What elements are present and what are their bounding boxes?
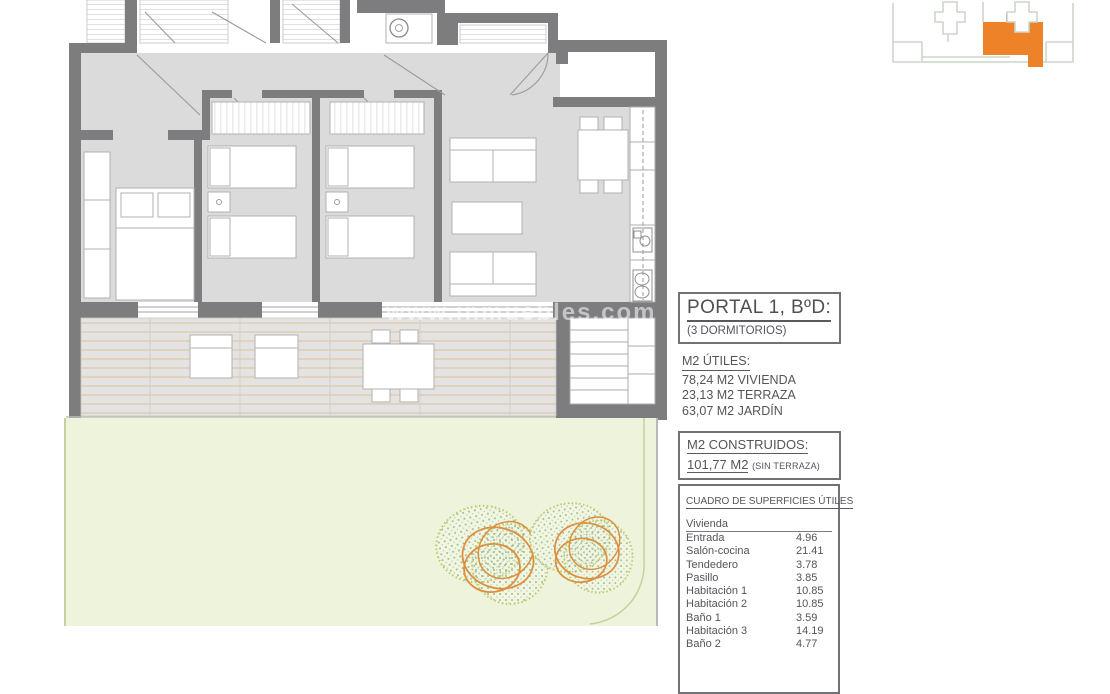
- row-label: Salón-cocina: [686, 545, 750, 558]
- row-label: Entrada: [686, 532, 725, 545]
- chair: [400, 330, 418, 343]
- terrace: [66, 318, 556, 417]
- chair: [580, 117, 598, 130]
- table-row: Habitación 3 14.19: [686, 625, 832, 638]
- m2-utiles-block: M2 ÚTILES: 78,24 M2 VIVIENDA 23,13 M2 TE…: [682, 354, 796, 419]
- portal-title-box: PORTAL 1, BºD: (3 DORMITORIOS): [678, 292, 841, 344]
- bedroom-3: [326, 102, 424, 258]
- dining-table: [578, 130, 628, 180]
- row-value: 4.77: [796, 638, 832, 651]
- m2-construidos-note: (SIN TERRAZA): [752, 461, 820, 471]
- floorplan-page: { "watermark": "www.inmuebles.com", "pan…: [0, 0, 1110, 626]
- portal-title: PORTAL 1, BºD:: [687, 297, 831, 322]
- bedroom-2: [208, 102, 310, 258]
- table-row: Habitación 1 10.85: [686, 585, 832, 598]
- table-row: Entrada 4.96: [686, 532, 832, 545]
- kitchen: [630, 107, 655, 302]
- stairs: [570, 318, 655, 404]
- chair: [400, 389, 418, 402]
- row-value: 10.85: [796, 585, 832, 598]
- sun-lounger: [255, 335, 298, 378]
- surfaces-table-box: CUADRO DE SUPERFICIES ÚTILES Vivienda En…: [678, 484, 840, 694]
- table-row: Baño 2 4.77: [686, 638, 832, 651]
- chair: [604, 117, 622, 130]
- nightstand: [208, 192, 230, 212]
- row-value: 14.19: [796, 625, 832, 638]
- wardrobe: [212, 102, 310, 134]
- m2-construidos-box: M2 CONSTRUIDOS: 101,77 M2 (SIN TERRAZA): [678, 431, 841, 480]
- row-value: 10.85: [796, 598, 832, 611]
- m2-utiles-line: 63,07 M2 JARDÍN: [682, 404, 796, 420]
- surfaces-table-heading: CUADRO DE SUPERFICIES ÚTILES: [686, 496, 853, 509]
- chair: [372, 389, 390, 402]
- coffee-table: [452, 202, 522, 234]
- table-row: Baño 1 3.59: [686, 612, 832, 625]
- table-row: Pasillo 3.85: [686, 572, 832, 585]
- row-label: Baño 1: [686, 612, 721, 625]
- row-value: 3.78: [796, 559, 832, 572]
- row-value: 4.96: [796, 532, 832, 545]
- row-label: Habitación 2: [686, 598, 747, 611]
- row-label: Tendedero: [686, 559, 738, 572]
- row-label: Pasillo: [686, 572, 718, 585]
- laundry-room: [386, 14, 432, 43]
- table-row: Habitación 2 10.85: [686, 598, 832, 611]
- m2-construidos-heading: M2 CONSTRUIDOS:: [687, 437, 808, 454]
- row-value: 3.85: [796, 572, 832, 585]
- watermark: www.inmuebles.com: [386, 299, 678, 327]
- chair: [580, 180, 598, 193]
- row-label: Habitación 3: [686, 625, 747, 638]
- wardrobe: [330, 102, 424, 134]
- sun-lounger: [190, 335, 232, 378]
- m2-utiles-line: 23,13 M2 TERRAZA: [682, 388, 796, 404]
- surfaces-table-group: Vivienda: [686, 518, 832, 532]
- m2-construidos-value: 101,77 M2: [687, 457, 748, 473]
- row-value: 3.59: [796, 612, 832, 625]
- row-label: Habitación 1: [686, 585, 747, 598]
- terrace-table: [363, 344, 434, 389]
- m2-utiles-line: 78,24 M2 VIVIENDA: [682, 373, 796, 389]
- table-row: Salón-cocina 21.41: [686, 545, 832, 558]
- nightstand: [326, 192, 348, 212]
- table-row: Tendedero 3.78: [686, 559, 832, 572]
- key-plan: [893, 2, 1073, 67]
- portal-subtitle: (3 DORMITORIOS): [687, 325, 832, 337]
- row-label: Baño 2: [686, 638, 721, 651]
- m2-utiles-heading: M2 ÚTILES:: [682, 354, 750, 371]
- chair: [372, 330, 390, 343]
- chair: [604, 180, 622, 193]
- row-value: 21.41: [796, 545, 832, 558]
